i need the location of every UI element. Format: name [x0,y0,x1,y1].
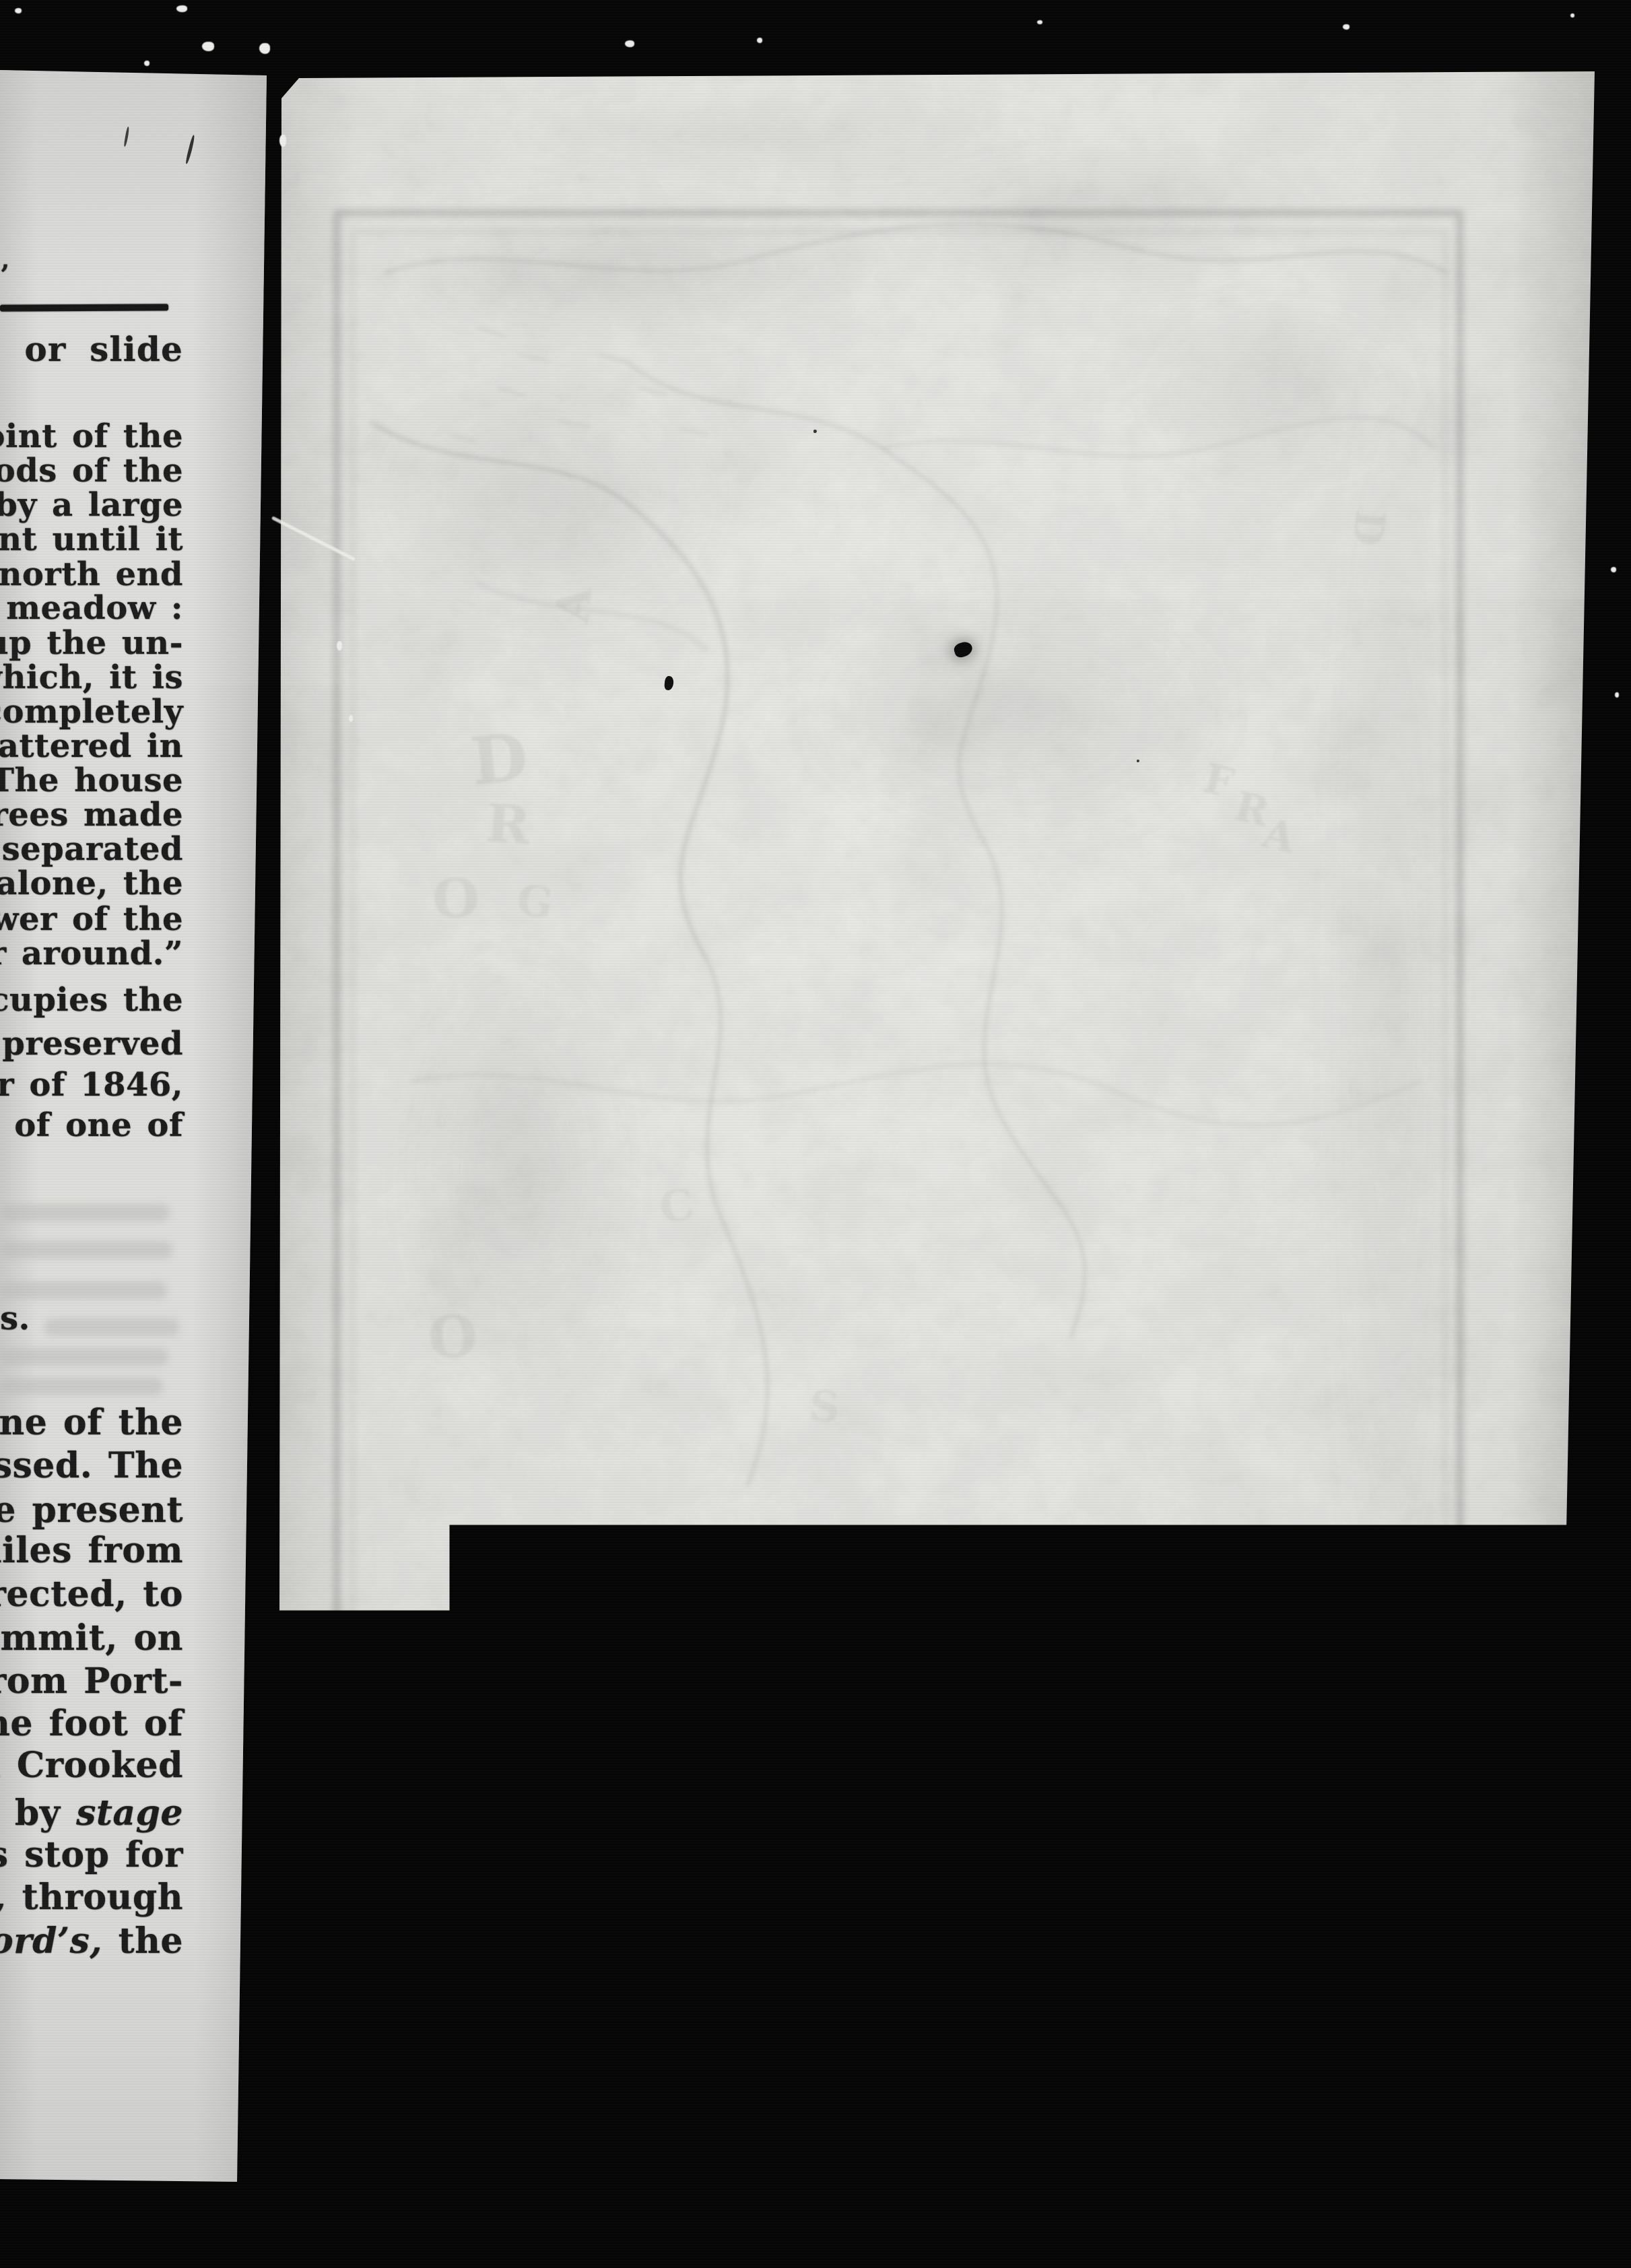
scanned-book-photograph: ’che or slidee point of theve rods of th… [0,0,1631,2268]
scanline-streaks [0,0,1631,2268]
